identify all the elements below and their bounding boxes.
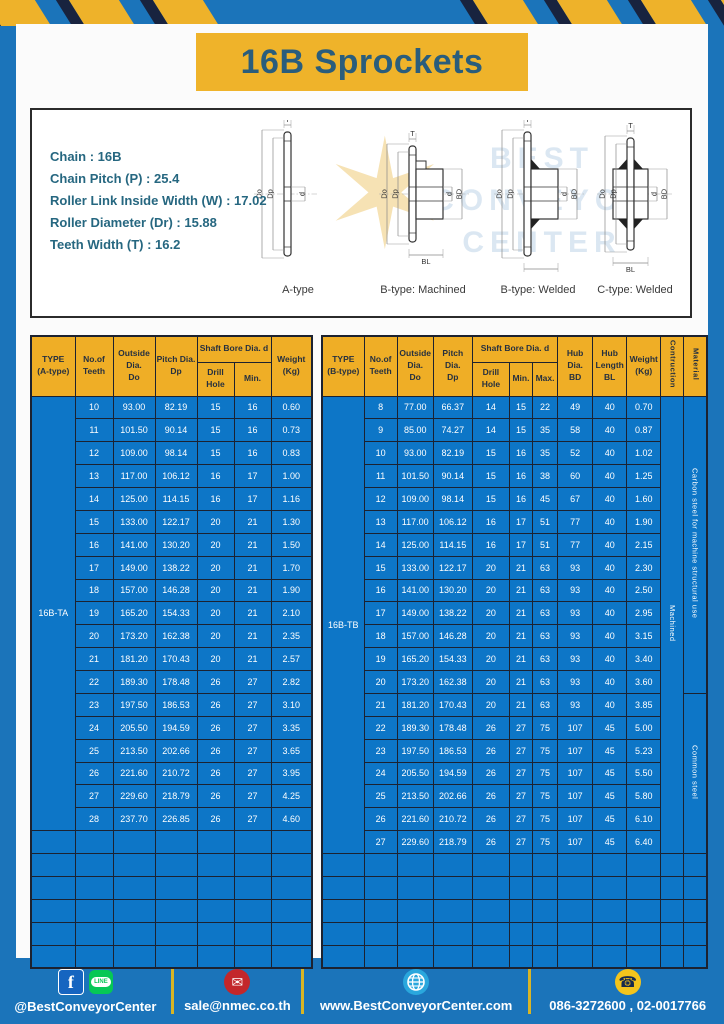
cell-hub-dia: 93 [558, 625, 593, 648]
cell-weight: 1.90 [271, 579, 312, 602]
cell-max: 51 [533, 533, 558, 556]
empty-cell [397, 922, 433, 945]
footer-social-handle: @BestConveyorCenter [14, 999, 156, 1014]
cell-outside-dia: 125.00 [113, 488, 155, 511]
empty-cell [271, 899, 312, 922]
empty-cell [684, 945, 707, 968]
cell-hub-length: 40 [593, 693, 627, 716]
cell-drill-hole: 15 [472, 442, 509, 465]
cell-outside-dia: 205.50 [397, 762, 433, 785]
empty-cell [684, 876, 707, 899]
c-type-welded-diagram: TDoDpdBDBL [581, 120, 685, 272]
chain-specs: Chain : 16B Chain Pitch (P) : 25.4 Rolle… [50, 146, 267, 256]
cell-min: 21 [234, 556, 271, 579]
cell-max: 75 [533, 716, 558, 739]
cell-max: 75 [533, 808, 558, 831]
cell-outside-dia: 173.20 [397, 671, 433, 694]
cell-hub-length: 40 [593, 442, 627, 465]
cell-pitch-dia: 154.33 [155, 602, 197, 625]
cell-pitch-dia: 218.79 [433, 831, 472, 854]
cell-outside-dia: 189.30 [113, 671, 155, 694]
svg-text:Do: Do [495, 189, 504, 199]
cell-hub-dia: 60 [558, 465, 593, 488]
table-row: 20173.20162.3820216393403.60 [322, 671, 707, 694]
cell-drill-hole: 20 [197, 579, 234, 602]
cell-outside-dia: 117.00 [113, 465, 155, 488]
cell-min: 21 [234, 625, 271, 648]
cell-pitch-dia: 106.12 [433, 510, 472, 533]
cell-drill-hole: 26 [197, 716, 234, 739]
cell-weight: 2.35 [271, 625, 312, 648]
header-outside-dia: Outside Dia. Do [397, 336, 433, 396]
empty-row [31, 922, 312, 945]
cell-max: 63 [533, 579, 558, 602]
cell-hub-dia: 77 [558, 510, 593, 533]
cell-pitch-dia: 74.27 [433, 419, 472, 442]
cell-min: 17 [509, 510, 532, 533]
cell-drill-hole: 20 [197, 625, 234, 648]
empty-cell [155, 922, 197, 945]
cell-teeth: 9 [364, 419, 397, 442]
header-min: Min. [234, 362, 271, 396]
empty-cell [397, 854, 433, 877]
cell-drill-hole: 26 [472, 808, 509, 831]
empty-cell [271, 876, 312, 899]
cell-teeth: 25 [364, 785, 397, 808]
header-shaft-bore: Shaft Bore Dia. d [197, 336, 271, 362]
cell-drill-hole: 14 [472, 396, 509, 419]
empty-cell [558, 854, 593, 877]
empty-cell [472, 854, 509, 877]
cell-teeth: 11 [75, 419, 113, 442]
cell-drill-hole: 20 [472, 625, 509, 648]
empty-cell [433, 854, 472, 877]
cell-teeth: 27 [364, 831, 397, 854]
cell-max: 75 [533, 739, 558, 762]
cell-pitch-dia: 202.66 [433, 785, 472, 808]
empty-cell [234, 831, 271, 854]
cell-drill-hole: 26 [472, 739, 509, 762]
empty-cell [533, 922, 558, 945]
cell-drill-hole: 26 [197, 671, 234, 694]
cell-hub-length: 40 [593, 625, 627, 648]
cell-hub-dia: 93 [558, 671, 593, 694]
cell-max: 63 [533, 602, 558, 625]
type-value-cell: 16B-TB [322, 396, 364, 854]
empty-cell [271, 854, 312, 877]
cell-drill-hole: 15 [472, 465, 509, 488]
cell-max: 45 [533, 488, 558, 511]
empty-cell [364, 922, 397, 945]
cell-hub-length: 45 [593, 808, 627, 831]
cell-weight: 2.82 [271, 671, 312, 694]
spec-tables: TYPE (A-type) No.of Teeth Outside Dia. D… [30, 335, 708, 969]
cell-hub-dia: 107 [558, 785, 593, 808]
table-row: 24205.50194.59262775107455.50 [322, 762, 707, 785]
cell-weight: 2.95 [627, 602, 661, 625]
cell-hub-length: 40 [593, 579, 627, 602]
cell-outside-dia: 133.00 [113, 510, 155, 533]
hazard-stripe-band [0, 0, 724, 26]
svg-text:Dp: Dp [391, 189, 400, 199]
cell-pitch-dia: 186.53 [155, 693, 197, 716]
cell-min: 21 [234, 533, 271, 556]
cell-weight: 1.70 [271, 556, 312, 579]
cell-pitch-dia: 82.19 [433, 442, 472, 465]
cell-min: 21 [234, 510, 271, 533]
svg-text:BD: BD [455, 188, 464, 199]
cell-outside-dia: 141.00 [113, 533, 155, 556]
empty-cell [558, 899, 593, 922]
cell-teeth: 15 [75, 510, 113, 533]
header-construction: Contruction [661, 336, 684, 396]
cell-min: 27 [234, 693, 271, 716]
hazard-stripe-yellow [0, 0, 54, 26]
empty-cell [322, 876, 364, 899]
cell-min: 21 [509, 556, 532, 579]
cell-outside-dia: 141.00 [397, 579, 433, 602]
cell-drill-hole: 16 [197, 488, 234, 511]
cell-outside-dia: 205.50 [113, 716, 155, 739]
svg-text:d: d [650, 192, 659, 196]
cell-teeth: 19 [364, 648, 397, 671]
cell-outside-dia: 237.70 [113, 808, 155, 831]
empty-cell [322, 922, 364, 945]
cell-teeth: 16 [75, 533, 113, 556]
empty-cell [397, 945, 433, 968]
empty-cell [155, 899, 197, 922]
line-icon: LINE [89, 970, 113, 994]
cell-hub-dia: 93 [558, 648, 593, 671]
cell-weight: 2.50 [627, 579, 661, 602]
cell-pitch-dia: 178.48 [155, 671, 197, 694]
empty-cell [433, 876, 472, 899]
svg-text:T: T [285, 120, 290, 124]
empty-cell [433, 899, 472, 922]
cell-teeth: 20 [75, 625, 113, 648]
empty-cell [627, 945, 661, 968]
empty-cell [31, 831, 75, 854]
table-row: 27229.60218.79262775107456.40 [322, 831, 707, 854]
cell-hub-length: 40 [593, 671, 627, 694]
cell-drill-hole: 26 [197, 762, 234, 785]
cell-drill-hole: 16 [472, 533, 509, 556]
page: 16B Sprockets ✶ BEST CONVEYOR CENTER Cha… [0, 0, 724, 1024]
cell-outside-dia: 149.00 [397, 602, 433, 625]
cell-weight: 3.65 [271, 739, 312, 762]
cell-teeth: 17 [364, 602, 397, 625]
empty-cell [533, 945, 558, 968]
empty-cell [533, 899, 558, 922]
empty-cell [661, 899, 684, 922]
empty-cell [322, 899, 364, 922]
empty-cell [364, 854, 397, 877]
empty-cell [558, 922, 593, 945]
cell-teeth: 12 [75, 442, 113, 465]
cell-teeth: 13 [364, 510, 397, 533]
empty-cell [271, 831, 312, 854]
cell-min: 16 [509, 465, 532, 488]
cell-weight: 3.40 [627, 648, 661, 671]
cell-hub-length: 40 [593, 556, 627, 579]
cell-teeth: 23 [364, 739, 397, 762]
cell-drill-hole: 20 [472, 648, 509, 671]
cell-drill-hole: 15 [197, 442, 234, 465]
cell-pitch-dia: 154.33 [433, 648, 472, 671]
header-type-b: TYPE (B-type) [322, 336, 364, 396]
cell-weight: 1.25 [627, 465, 661, 488]
table-row: 15133.00122.1720216393402.30 [322, 556, 707, 579]
cell-pitch-dia: 210.72 [433, 808, 472, 831]
empty-cell [234, 854, 271, 877]
table-row: 13117.00106.1216175177401.90 [322, 510, 707, 533]
empty-cell [533, 876, 558, 899]
spec-teeth-width: Teeth Width (T) : 16.2 [50, 234, 267, 256]
empty-cell [75, 922, 113, 945]
cell-drill-hole: 15 [197, 419, 234, 442]
cell-outside-dia: 173.20 [113, 625, 155, 648]
cell-weight: 2.57 [271, 648, 312, 671]
cell-drill-hole: 20 [197, 602, 234, 625]
cell-max: 22 [533, 396, 558, 419]
empty-cell [593, 922, 627, 945]
svg-text:Dp: Dp [506, 189, 515, 199]
cell-weight: 1.16 [271, 488, 312, 511]
empty-cell [31, 945, 75, 968]
cell-hub-length: 40 [593, 465, 627, 488]
header-shaft-bore: Shaft Bore Dia. d [472, 336, 557, 362]
cell-pitch-dia: 138.22 [433, 602, 472, 625]
b-type-welded-diagram: TDoDpdBDBL [484, 120, 588, 272]
table-row: 19165.20154.3320216393403.40 [322, 648, 707, 671]
empty-row [322, 945, 707, 968]
cell-drill-hole: 26 [472, 831, 509, 854]
cell-drill-hole: 16 [197, 465, 234, 488]
empty-cell [234, 876, 271, 899]
cell-teeth: 13 [75, 465, 113, 488]
cell-min: 15 [509, 396, 532, 419]
svg-text:BD: BD [570, 188, 579, 199]
cell-weight: 6.10 [627, 808, 661, 831]
cell-outside-dia: 197.50 [113, 693, 155, 716]
empty-row [31, 876, 312, 899]
cell-weight: 3.60 [627, 671, 661, 694]
cell-weight: 0.70 [627, 396, 661, 419]
empty-cell [271, 945, 312, 968]
header-pitch-dia: Pitch Dia. Dp [155, 336, 197, 396]
cell-teeth: 19 [75, 602, 113, 625]
cell-teeth: 8 [364, 396, 397, 419]
cell-weight: 1.60 [627, 488, 661, 511]
empty-cell [31, 854, 75, 877]
cell-hub-length: 45 [593, 831, 627, 854]
spec-roller-link-width: Roller Link Inside Width (W) : 17.02 [50, 190, 267, 212]
svg-text:T: T [525, 120, 530, 124]
empty-cell [364, 876, 397, 899]
cell-outside-dia: 221.60 [397, 808, 433, 831]
svg-text:BD: BD [660, 188, 669, 199]
cell-drill-hole: 26 [197, 739, 234, 762]
empty-cell [627, 922, 661, 945]
empty-cell [661, 876, 684, 899]
empty-cell [197, 922, 234, 945]
empty-row [322, 899, 707, 922]
cell-weight: 4.25 [271, 785, 312, 808]
cell-weight: 1.50 [271, 533, 312, 556]
cell-outside-dia: 181.20 [113, 648, 155, 671]
empty-cell [472, 922, 509, 945]
empty-cell [593, 876, 627, 899]
cell-teeth: 15 [364, 556, 397, 579]
empty-cell [155, 876, 197, 899]
empty-cell [533, 854, 558, 877]
footer-email: sale@nmec.co.th [184, 998, 291, 1013]
header-hub-length: Hub Length BL [593, 336, 627, 396]
empty-cell [31, 922, 75, 945]
empty-cell [113, 854, 155, 877]
header-material: Material [684, 336, 707, 396]
cell-min: 21 [509, 579, 532, 602]
cell-hub-dia: 52 [558, 442, 593, 465]
cell-max: 63 [533, 671, 558, 694]
page-title: 16B Sprockets [241, 43, 484, 82]
cell-weight: 1.90 [627, 510, 661, 533]
cell-min: 17 [234, 488, 271, 511]
cell-teeth: 24 [75, 716, 113, 739]
cell-weight: 2.15 [627, 533, 661, 556]
header-weight: Weight (Kg) [627, 336, 661, 396]
cell-pitch-dia: 90.14 [155, 419, 197, 442]
cell-pitch-dia: 218.79 [155, 785, 197, 808]
cell-drill-hole: 20 [472, 693, 509, 716]
diagram-label-b-machined: B-type: Machined [361, 284, 485, 296]
cell-min: 16 [234, 396, 271, 419]
empty-row [31, 854, 312, 877]
cell-weight: 5.00 [627, 716, 661, 739]
cell-drill-hole: 20 [472, 602, 509, 625]
cell-min: 27 [509, 739, 532, 762]
cell-pitch-dia: 162.38 [433, 671, 472, 694]
cell-max: 63 [533, 648, 558, 671]
empty-cell [31, 899, 75, 922]
empty-row [31, 899, 312, 922]
table-row: 22189.30178.48262775107455.00 [322, 716, 707, 739]
cell-min: 21 [509, 693, 532, 716]
cell-weight: 2.10 [271, 602, 312, 625]
empty-cell [113, 922, 155, 945]
empty-row [322, 922, 707, 945]
header-drill-hole: Drill Hole [472, 362, 509, 396]
cell-drill-hole: 20 [472, 556, 509, 579]
cell-pitch-dia: 114.15 [155, 488, 197, 511]
cell-min: 16 [234, 419, 271, 442]
cell-hub-length: 40 [593, 533, 627, 556]
cell-hub-dia: 67 [558, 488, 593, 511]
cell-hub-dia: 107 [558, 808, 593, 831]
empty-cell [397, 876, 433, 899]
empty-cell [627, 876, 661, 899]
empty-cell [75, 831, 113, 854]
cell-weight: 1.02 [627, 442, 661, 465]
cell-weight: 3.35 [271, 716, 312, 739]
svg-text:BL: BL [536, 271, 545, 272]
cell-hub-dia: 93 [558, 602, 593, 625]
cell-pitch-dia: 66.37 [433, 396, 472, 419]
cell-min: 27 [509, 762, 532, 785]
empty-cell [661, 854, 684, 877]
cell-pitch-dia: 162.38 [155, 625, 197, 648]
empty-cell [75, 945, 113, 968]
cell-min: 27 [234, 739, 271, 762]
cell-outside-dia: 117.00 [397, 510, 433, 533]
cell-min: 27 [509, 716, 532, 739]
empty-cell [197, 945, 234, 968]
cell-teeth: 27 [75, 785, 113, 808]
cell-drill-hole: 20 [472, 579, 509, 602]
cell-teeth: 25 [75, 739, 113, 762]
cell-teeth: 18 [75, 579, 113, 602]
header-hub-dia: Hub Dia. BD [558, 336, 593, 396]
empty-cell [31, 876, 75, 899]
empty-cell [558, 876, 593, 899]
cell-max: 75 [533, 831, 558, 854]
cell-hub-dia: 49 [558, 396, 593, 419]
cell-hub-dia: 107 [558, 762, 593, 785]
cell-weight: 5.50 [627, 762, 661, 785]
empty-cell [234, 922, 271, 945]
cell-min: 17 [234, 465, 271, 488]
cell-teeth: 24 [364, 762, 397, 785]
cell-weight: 1.00 [271, 465, 312, 488]
facebook-icon: f [58, 969, 84, 995]
cell-drill-hole: 16 [472, 510, 509, 533]
cell-min: 21 [234, 602, 271, 625]
cell-min: 16 [509, 442, 532, 465]
cell-pitch-dia: 186.53 [433, 739, 472, 762]
cell-outside-dia: 197.50 [397, 739, 433, 762]
table-row: 16B-TA1093.0082.1915160.60 [31, 396, 312, 419]
globe-icon [403, 969, 429, 995]
empty-cell [472, 899, 509, 922]
cell-outside-dia: 229.60 [397, 831, 433, 854]
svg-text:BL: BL [626, 265, 635, 272]
cell-drill-hole: 20 [197, 648, 234, 671]
empty-cell [684, 899, 707, 922]
header-max: Max. [533, 362, 558, 396]
table-row: 14125.00114.1516175177402.15 [322, 533, 707, 556]
svg-text:Do: Do [380, 189, 389, 199]
phone-icon: ☎ [615, 969, 641, 995]
cell-pitch-dia: 122.17 [155, 510, 197, 533]
svg-text:d: d [445, 192, 454, 196]
empty-cell [472, 876, 509, 899]
diagram-label-c-welded: C-type: Welded [573, 284, 692, 296]
cell-outside-dia: 213.50 [397, 785, 433, 808]
table-a: TYPE (A-type) No.of Teeth Outside Dia. D… [30, 335, 313, 969]
cell-weight: 2.30 [627, 556, 661, 579]
table-row: 12109.0098.1415164567401.60 [322, 488, 707, 511]
empty-cell [397, 899, 433, 922]
header-outside-dia: Outside Dia. Do [113, 336, 155, 396]
cell-min: 21 [509, 625, 532, 648]
svg-text:Dp: Dp [609, 189, 618, 199]
cell-teeth: 21 [364, 693, 397, 716]
cell-weight: 0.60 [271, 396, 312, 419]
cell-min: 15 [509, 419, 532, 442]
table-row: 17149.00138.2220216393402.95 [322, 602, 707, 625]
cell-weight: 4.60 [271, 808, 312, 831]
cell-outside-dia: 125.00 [397, 533, 433, 556]
